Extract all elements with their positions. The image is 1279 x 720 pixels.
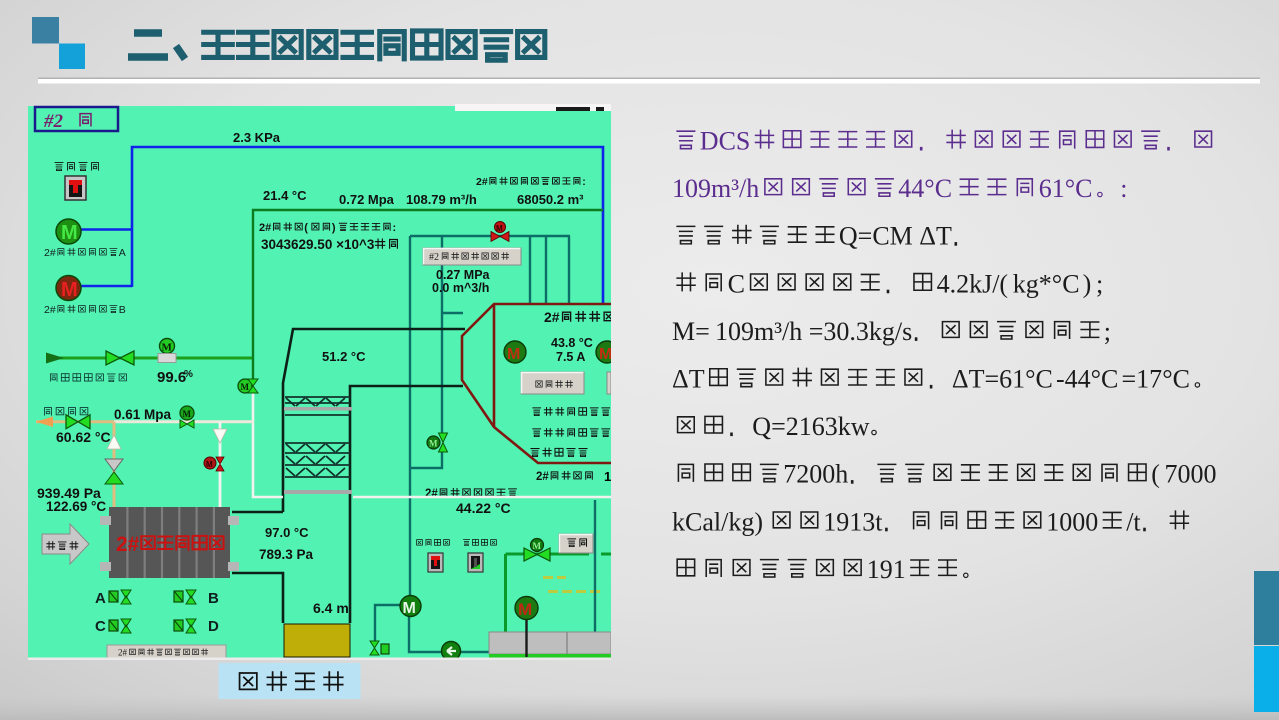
svg-text:3043629.50 ×10^3: 3043629.50 ×10^3	[261, 237, 375, 252]
svg-text:B: B	[208, 590, 219, 607]
svg-text:M: M	[241, 382, 250, 392]
svg-text:%: %	[184, 369, 193, 380]
svg-text:°C: °C	[1052, 269, 1080, 298]
svg-text:#2: #2	[43, 111, 64, 132]
svg-text:99.6: 99.6	[157, 369, 186, 386]
svg-text:Q=CM ΔT: Q=CM ΔT	[839, 222, 952, 251]
svg-text::: :	[582, 176, 586, 188]
svg-text:Q=2163kw: Q=2163kw	[752, 412, 869, 441]
svg-text:191: 191	[867, 555, 906, 584]
svg-text:°C: °C	[95, 429, 111, 445]
svg-text:1: 1	[604, 469, 611, 484]
svg-text:°C: °C	[579, 336, 593, 350]
svg-text:4.2kJ/(: 4.2kJ/(	[937, 269, 1009, 298]
svg-text:2#: 2#	[544, 309, 560, 325]
svg-text:43.8: 43.8	[551, 336, 575, 350]
svg-text:M: M	[429, 439, 438, 449]
svg-text:122.69: 122.69	[46, 499, 87, 514]
svg-text:44: 44	[898, 174, 924, 203]
svg-text:;: ;	[1096, 269, 1103, 298]
svg-text:D: D	[208, 618, 219, 635]
svg-text:M: M	[507, 346, 520, 363]
svg-text:2#: 2#	[44, 304, 56, 316]
svg-text:M: M	[403, 600, 416, 617]
svg-text:2#: 2#	[259, 222, 271, 234]
svg-text:A: A	[119, 247, 126, 259]
svg-text:C: C	[95, 618, 106, 635]
svg-text:2#: 2#	[44, 247, 56, 259]
svg-text:°C: °C	[1091, 365, 1119, 394]
svg-text:1000: 1000	[1046, 507, 1098, 536]
svg-text:7.5 A: 7.5 A	[556, 350, 585, 364]
svg-text:#2: #2	[429, 252, 439, 263]
svg-text:0.27 MPa: 0.27 MPa	[436, 268, 491, 282]
svg-text:): )	[1083, 269, 1092, 298]
svg-text:M: M	[496, 224, 503, 233]
svg-text:0.61 Mpa: 0.61 Mpa	[114, 407, 172, 422]
svg-text:61: 61	[1039, 174, 1065, 203]
svg-text:51.2: 51.2	[322, 349, 347, 364]
svg-text:°C: °C	[294, 525, 309, 540]
svg-text:M: M	[599, 346, 612, 363]
svg-text:1913t: 1913t	[823, 507, 883, 536]
svg-text:109m³/h =30.3kg/s: 109m³/h =30.3kg/s	[715, 317, 912, 346]
svg-text:ΔT: ΔT	[672, 365, 705, 394]
svg-text:=17: =17	[1122, 365, 1163, 394]
svg-text:109m³/h: 109m³/h	[672, 174, 759, 203]
svg-text:M: M	[206, 460, 213, 469]
svg-text:A: A	[95, 590, 106, 607]
svg-text:2#: 2#	[118, 648, 128, 658]
svg-text:0.0 m^3/h: 0.0 m^3/h	[432, 281, 489, 295]
svg-text:2.3 KPa: 2.3 KPa	[233, 130, 281, 145]
svg-text:/t: /t	[1126, 507, 1141, 536]
svg-text:2#: 2#	[536, 471, 549, 483]
svg-text:kg*: kg*	[1013, 269, 1052, 298]
svg-text:°C: °C	[1162, 365, 1190, 394]
svg-text:kCal/kg): kCal/kg)	[672, 507, 763, 536]
svg-text:68050.2 m³: 68050.2 m³	[517, 192, 584, 207]
svg-text:C: C	[728, 269, 745, 298]
svg-text:M=: M=	[672, 317, 710, 346]
svg-text:97.0: 97.0	[265, 525, 290, 540]
svg-text:0.72 Mpa: 0.72 Mpa	[339, 192, 395, 207]
svg-text::: :	[393, 222, 397, 234]
svg-text:ΔT=61: ΔT=61	[952, 365, 1025, 394]
svg-text:M: M	[533, 541, 542, 551]
svg-text:44.22: 44.22	[456, 500, 491, 516]
svg-text:(: (	[1151, 460, 1160, 489]
svg-text:2#: 2#	[116, 533, 140, 556]
svg-text:M: M	[61, 222, 78, 244]
svg-text:(: (	[304, 222, 308, 234]
svg-text:60.62: 60.62	[56, 429, 91, 445]
svg-text:°C: °C	[1025, 365, 1053, 394]
svg-text:): )	[332, 222, 336, 234]
svg-text:°C: °C	[292, 188, 307, 203]
svg-text:;: ;	[1104, 317, 1111, 346]
svg-text:°C: °C	[91, 499, 106, 514]
svg-text:B: B	[119, 304, 126, 316]
svg-text:21.4: 21.4	[263, 188, 289, 203]
svg-text:M: M	[518, 600, 532, 619]
svg-text::: :	[1120, 174, 1127, 203]
svg-text:7200h: 7200h	[783, 460, 848, 489]
svg-text:7000: 7000	[1165, 460, 1217, 489]
svg-text:6.4 m: 6.4 m	[313, 600, 349, 616]
svg-text:°C: °C	[1065, 174, 1093, 203]
svg-text:2#: 2#	[476, 176, 488, 188]
svg-text:108.79 m³/h: 108.79 m³/h	[406, 192, 477, 207]
svg-text:M: M	[183, 409, 192, 419]
svg-text:-44: -44	[1056, 365, 1091, 394]
svg-text:°C: °C	[351, 349, 366, 364]
svg-text:M: M	[61, 279, 78, 301]
svg-text:DCS: DCS	[700, 127, 751, 156]
svg-text:°C: °C	[495, 500, 511, 516]
svg-text:°C: °C	[924, 174, 952, 203]
svg-text:789.3 Pa: 789.3 Pa	[259, 547, 314, 562]
svg-text:M: M	[162, 342, 173, 354]
